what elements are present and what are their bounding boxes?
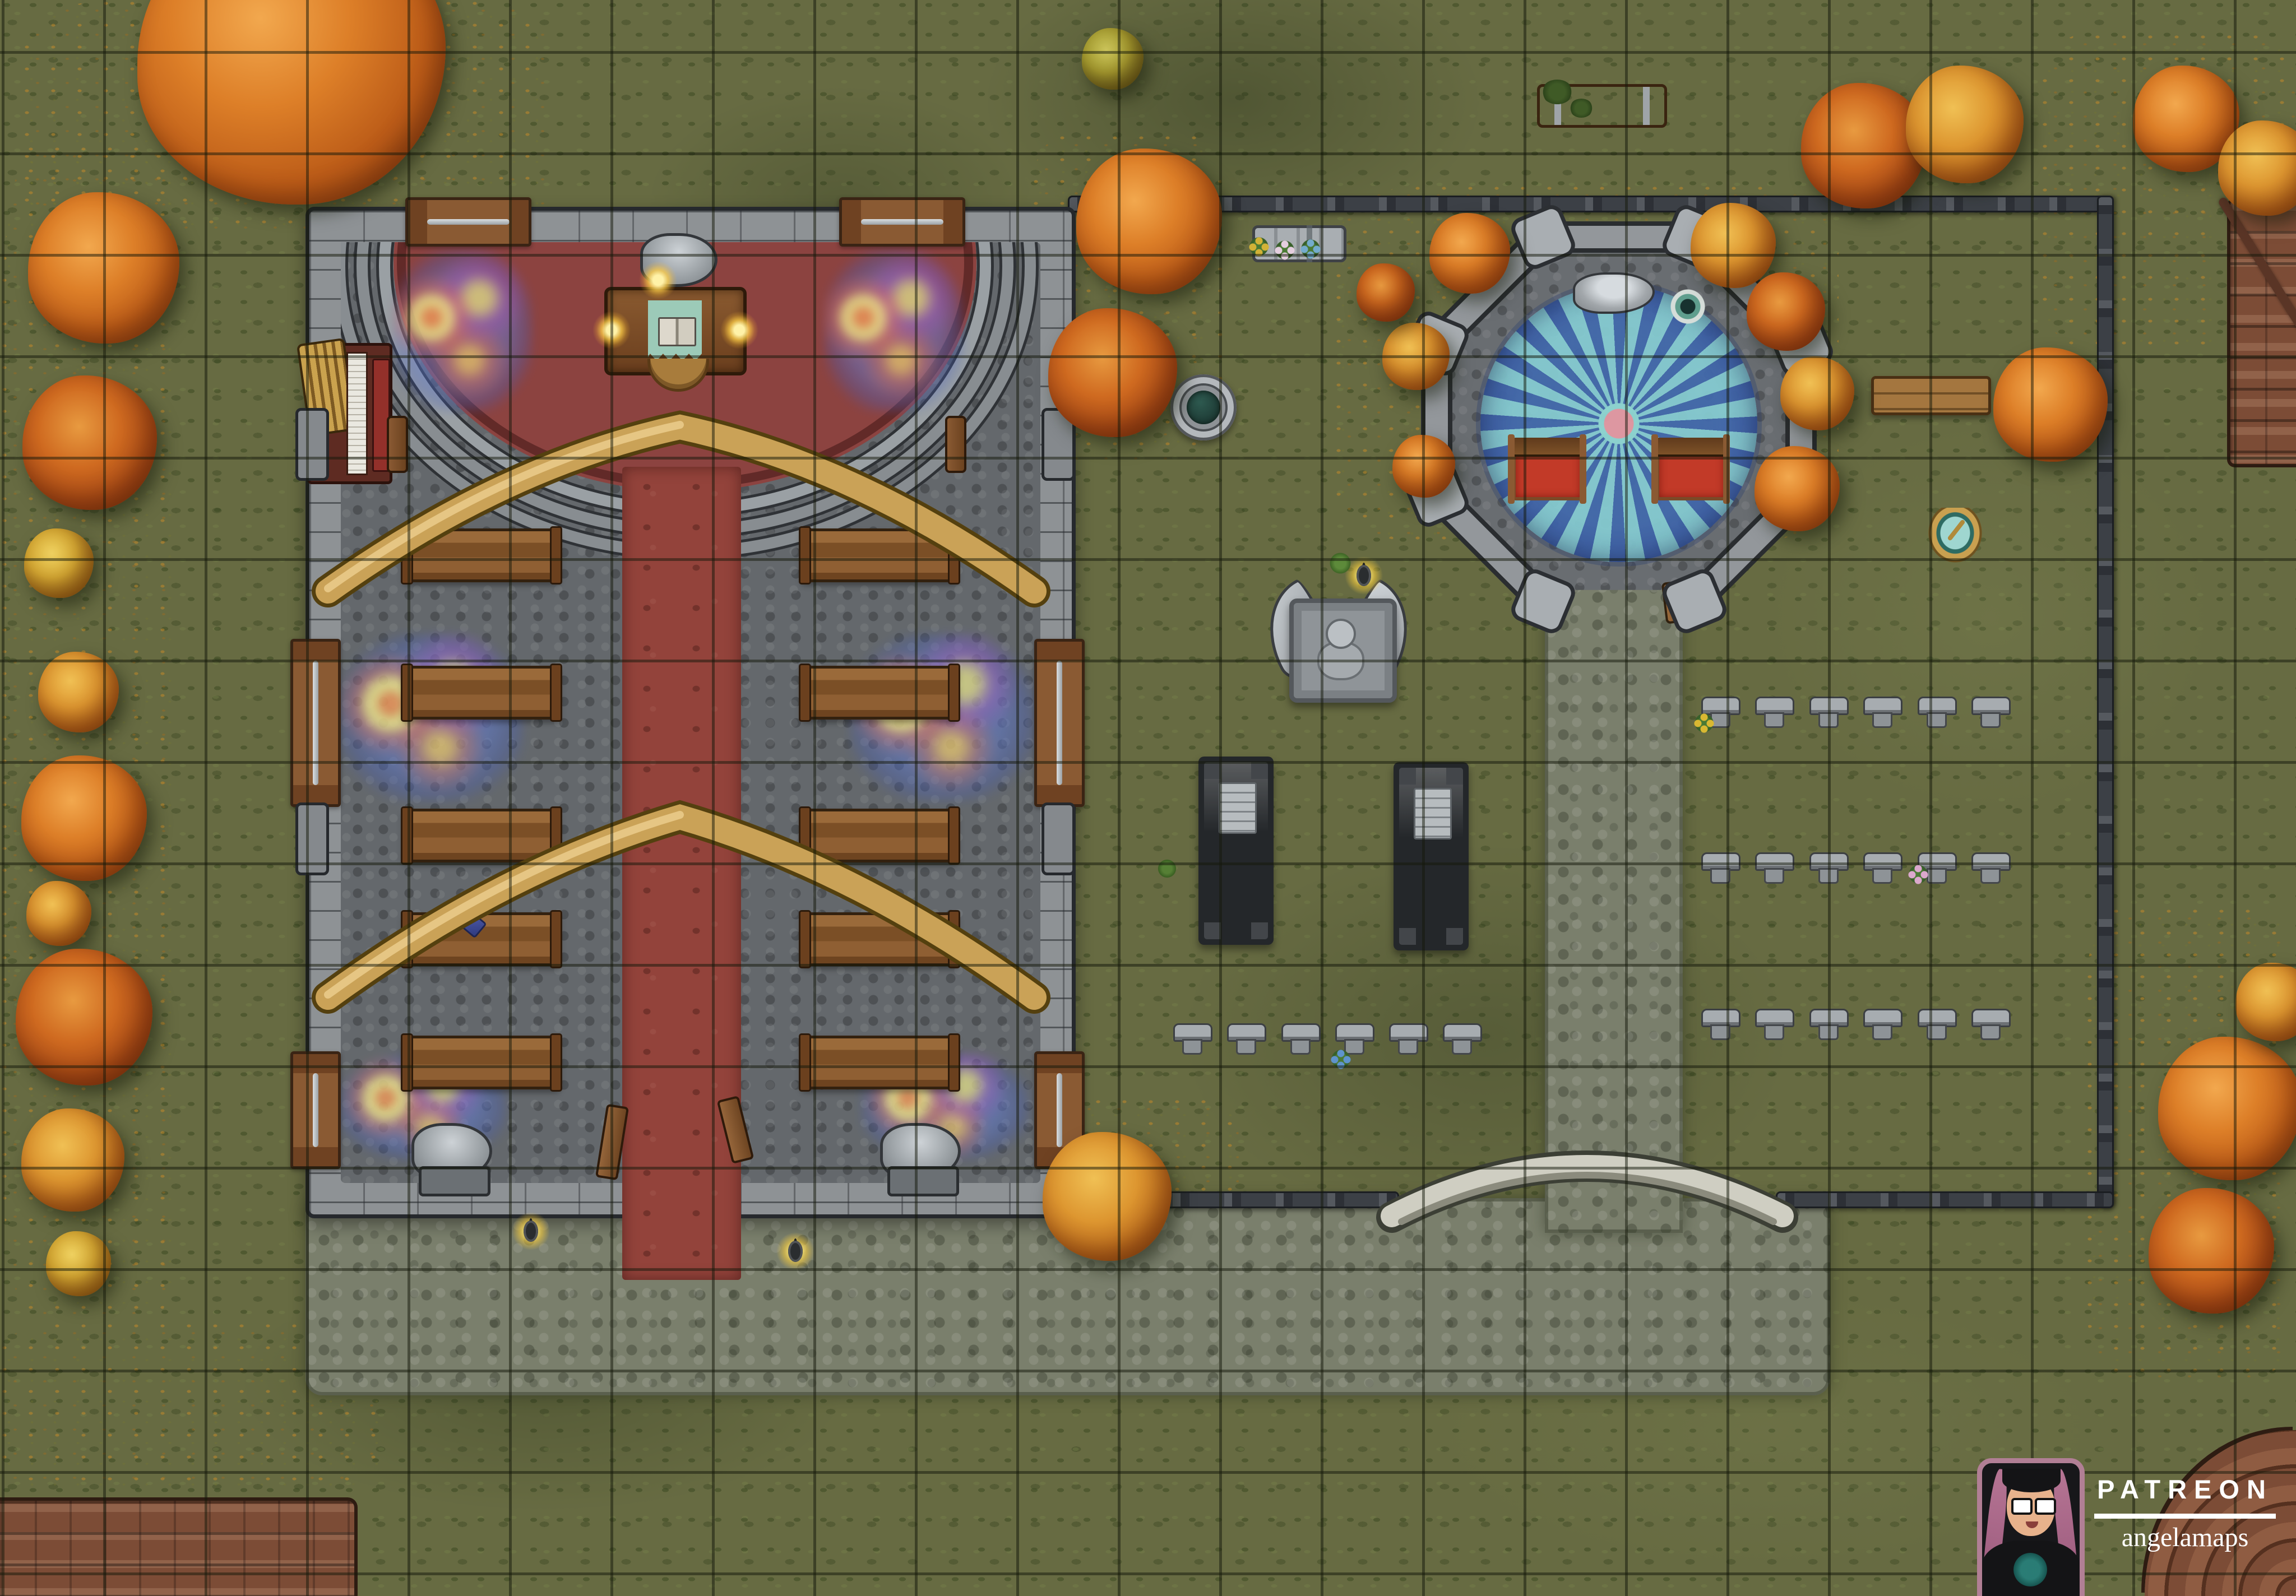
entrance-gargoyle	[411, 1123, 492, 1180]
autumn-tree	[24, 528, 94, 598]
autumn-tree	[2158, 1037, 2296, 1180]
grass-tone-patch	[1429, 1289, 2102, 1569]
map-prop	[1327, 550, 1353, 576]
autumn-tree	[2218, 120, 2296, 216]
flower-cluster	[1328, 1046, 1354, 1072]
autumn-tree	[137, 0, 446, 205]
fallen-leaves-patch	[0, 146, 185, 1323]
gravestone	[1863, 1009, 1899, 1041]
fence-south-west	[1068, 1191, 1399, 1208]
autumn-tree	[28, 192, 179, 344]
wall-gargoyle-statue	[640, 233, 717, 287]
gate-arch	[1392, 1166, 1783, 1222]
autumn-tree	[1076, 149, 1222, 294]
autumn-tree	[21, 1108, 124, 1212]
sarcophagus-lid	[1399, 768, 1463, 945]
gravestone	[1701, 1009, 1737, 1041]
grass-tone-patch	[235, 1255, 852, 1513]
stone-sarcophagus	[1198, 757, 1274, 945]
autumn-tree	[1993, 347, 2108, 462]
gravestone	[1281, 1023, 1317, 1056]
patreon-wordmark: PATREON	[2093, 1474, 2278, 1505]
gravestone	[1809, 852, 1845, 885]
water-basin	[1928, 508, 1982, 563]
avatar-hair-fringe	[2002, 1469, 2061, 1492]
altar	[604, 287, 747, 375]
stone-well	[1170, 374, 1237, 440]
gazebo-pavilion	[1422, 222, 1816, 616]
autumn-tree	[22, 375, 157, 510]
organ-bench	[372, 359, 390, 472]
autumn-tree	[2235, 963, 2296, 1041]
pink-hair-streak	[1980, 1468, 2010, 1596]
gravestone	[1918, 1009, 1954, 1041]
gargoyle-pedestal	[419, 1166, 490, 1196]
gravestone	[1809, 1009, 1845, 1041]
autumn-tree	[2133, 66, 2239, 172]
gazebo-bench	[1656, 438, 1728, 500]
grass-tone-patch	[1766, 420, 2214, 813]
gravestone	[1755, 697, 1791, 729]
gravestone	[1173, 1023, 1209, 1056]
lantern	[776, 1232, 815, 1271]
ruined-stone-bench	[1252, 225, 1346, 262]
fallen-leaves-patch	[22, 0, 549, 241]
creator-avatar	[1977, 1458, 2085, 1596]
fallen-leaves-patch	[2040, 34, 2296, 347]
creator-name: angelamaps	[2093, 1522, 2278, 1553]
gargoyle-pedestal	[887, 1166, 959, 1196]
fallen-leaves-patch	[2085, 908, 2296, 1379]
avatar-smile	[2026, 1521, 2038, 1528]
sarcophagus-plaque	[1219, 782, 1257, 834]
brand-divider	[2094, 1514, 2276, 1519]
gravestone	[1701, 852, 1737, 885]
gravestone	[1701, 697, 1737, 729]
gravestone	[1809, 697, 1845, 729]
gazebo-path	[1545, 583, 1683, 1233]
autumn-tree	[1082, 28, 1144, 90]
entrance-gargoyle	[880, 1123, 961, 1180]
organ-keyboard	[346, 352, 368, 475]
mosaic-floor	[1480, 285, 1757, 562]
building-roof-corner-northeast	[2227, 199, 2296, 467]
avatar-shirt	[1982, 1541, 2080, 1596]
avatar-glasses	[2035, 1498, 2056, 1515]
gazebo-bench	[1512, 438, 1584, 500]
avatar-face	[2007, 1478, 2055, 1536]
gravestone	[1971, 697, 2007, 729]
grass-tone-patch	[1177, 841, 1794, 1233]
fence-east	[2097, 196, 2114, 1208]
map-prop	[1156, 857, 1178, 880]
stone-sarcophagus	[1394, 762, 1469, 950]
building-roof-corner-southwest	[0, 1497, 358, 1596]
gravestone	[1755, 1009, 1791, 1041]
gravestone	[1443, 1023, 1479, 1056]
gravestone	[1918, 697, 1954, 729]
autumn-tree	[16, 949, 152, 1085]
autumn-tree	[1357, 263, 1415, 322]
battle-map[interactable]: PATREON angelamaps	[0, 0, 2296, 1596]
courtyard-path	[305, 1198, 1830, 1395]
autumn-tree	[38, 652, 119, 732]
flower-cluster	[1905, 861, 1931, 887]
fallen-leaves-patch	[0, 1323, 381, 1491]
gravestone	[1863, 697, 1899, 729]
gravestone	[1918, 852, 1954, 885]
gravestone	[1335, 1023, 1371, 1056]
fence-south-east	[1776, 1191, 2114, 1208]
tower-roof-corner-southeast	[2145, 1430, 2296, 1596]
gravestone	[1971, 1009, 2007, 1041]
gravestone	[1863, 852, 1899, 885]
open-book	[658, 317, 696, 346]
gravestone	[1971, 852, 2007, 885]
gravestone	[1389, 1023, 1425, 1056]
autumn-tree	[1906, 66, 2024, 183]
autumn-tree	[21, 755, 147, 881]
flower-cluster	[1691, 710, 1717, 736]
angel-statue	[1266, 583, 1411, 706]
pink-hair-streak	[2050, 1468, 2081, 1596]
candle-glow	[638, 261, 678, 300]
autumn-tree	[26, 881, 91, 946]
candle-glow	[720, 310, 759, 350]
gravestone	[1755, 852, 1791, 885]
autumn-tree	[46, 1231, 111, 1296]
red-carpet-aisle	[622, 467, 741, 1280]
autumn-tree	[1801, 83, 1927, 208]
sarcophagus-plaque	[1414, 788, 1452, 839]
avatar-shirt-design	[2013, 1553, 2047, 1586]
fence-north	[1068, 196, 2108, 212]
avatar-glasses	[2011, 1498, 2033, 1515]
autumn-tree	[2149, 1188, 2274, 1314]
gravestone	[1227, 1023, 1263, 1056]
pipe-organ	[307, 343, 392, 484]
wooden-bench-north	[1537, 84, 1667, 128]
candle-glow	[592, 310, 631, 350]
map-prop	[262, 1540, 316, 1596]
wooden-bench-east	[1871, 376, 1991, 415]
statue-head	[1326, 619, 1356, 649]
sarcophagus-lid	[1204, 762, 1268, 939]
